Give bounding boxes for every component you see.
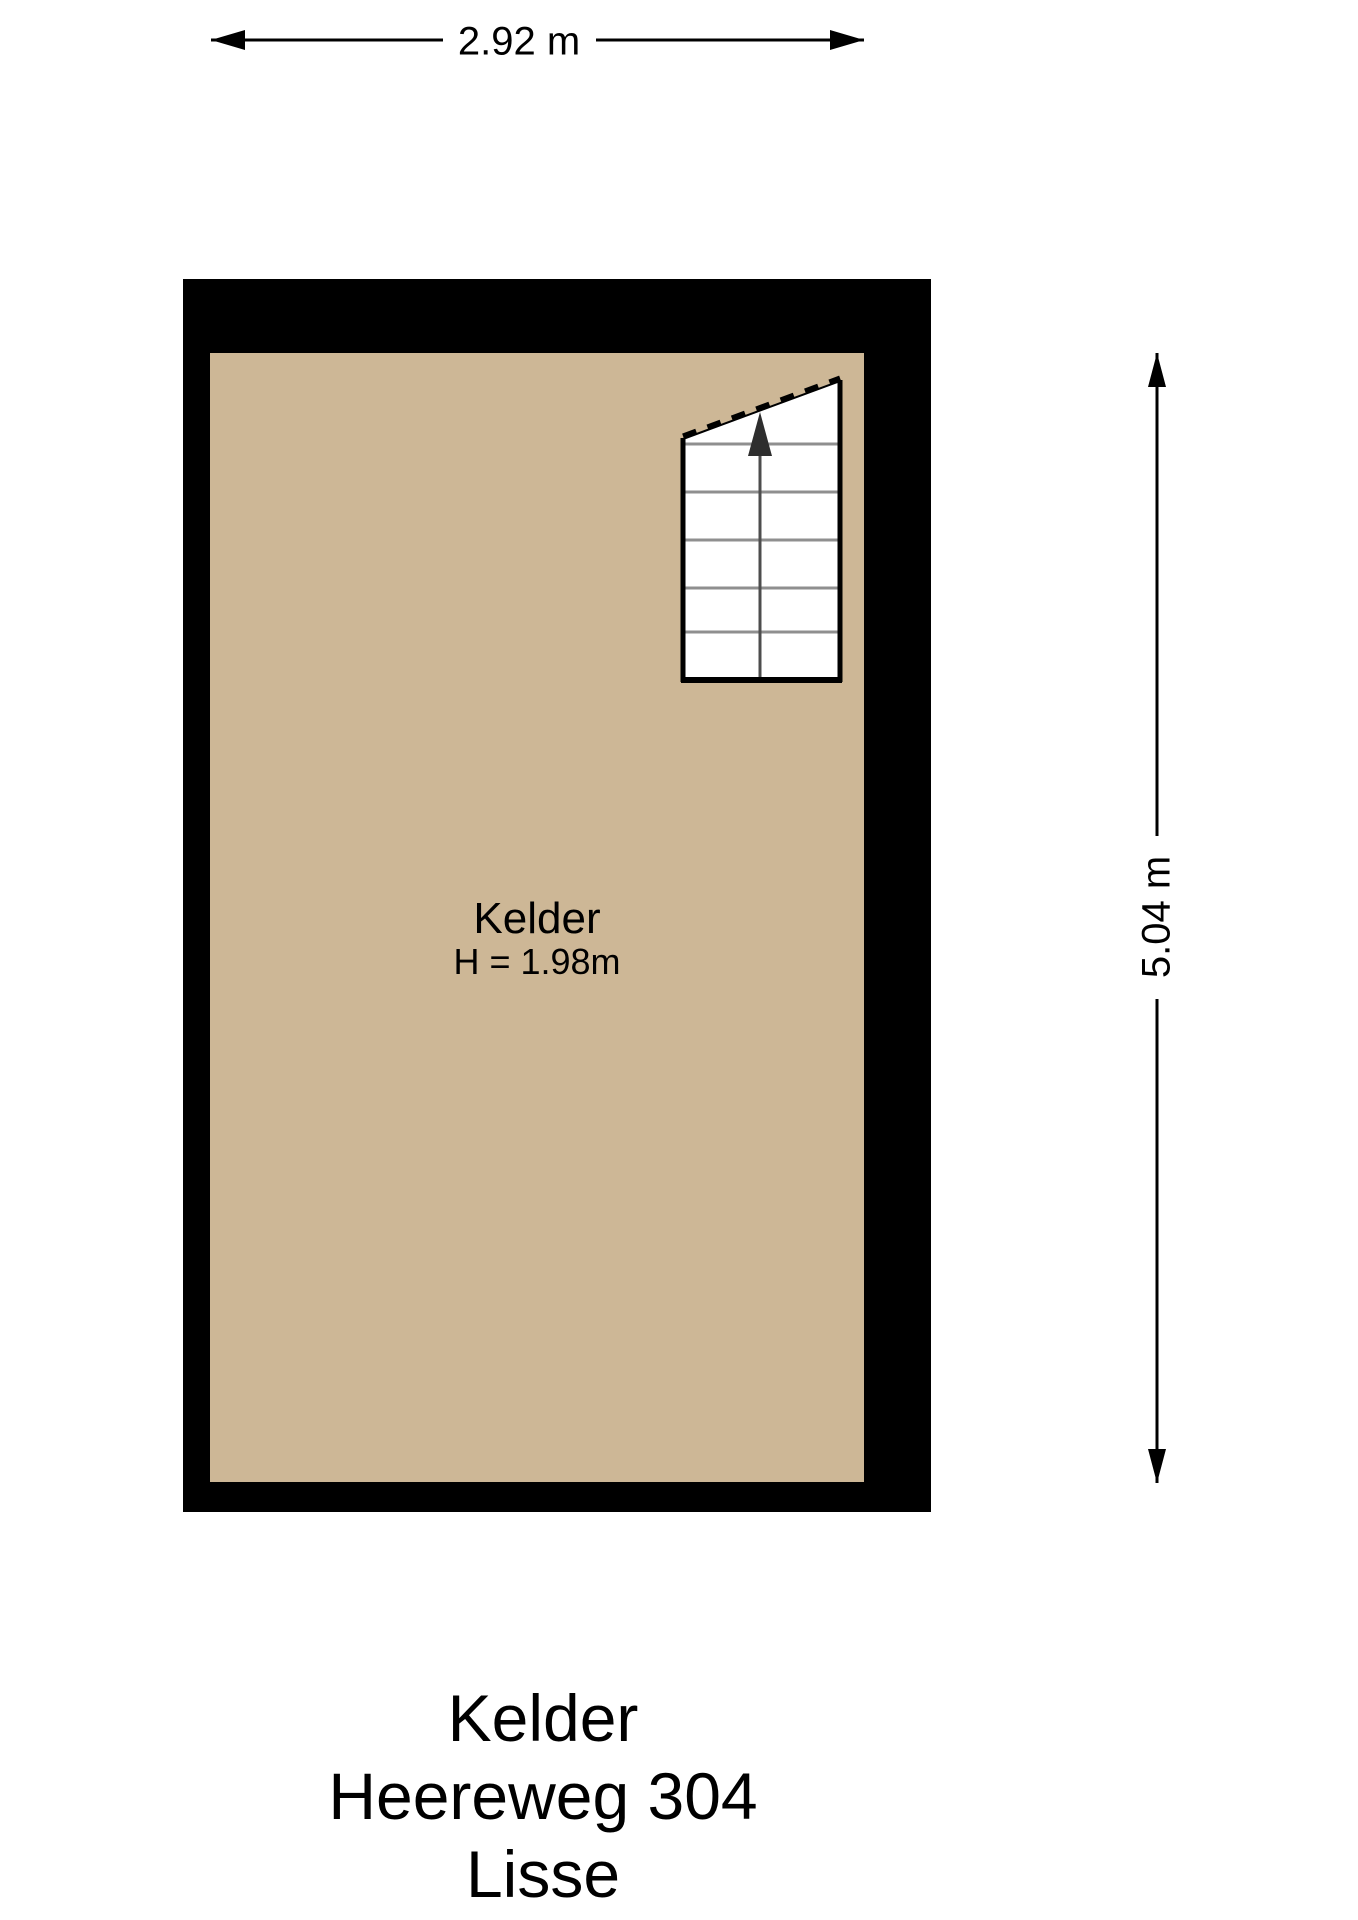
plan-title-address: Heereweg 304 (328, 1757, 757, 1835)
room-ceiling-height-label: H = 1.98m (453, 941, 620, 983)
plan-title-city: Lisse (328, 1835, 757, 1913)
floorplan-page: 2.92 m 5.04 m Kelder H = 1.98m Kelder He… (0, 0, 1358, 1920)
arrow-down-icon (1148, 1449, 1166, 1483)
arrow-up-icon (1148, 353, 1166, 387)
plan-title: Kelder Heereweg 304 Lisse (328, 1679, 757, 1913)
plan-title-room: Kelder (328, 1679, 757, 1757)
room-name-label: Kelder (473, 894, 600, 944)
arrow-left-icon (211, 30, 245, 50)
width-dimension-label: 2.92 m (458, 20, 580, 65)
height-dimension-label: 5.04 m (1135, 856, 1180, 978)
arrow-right-icon (830, 30, 864, 50)
